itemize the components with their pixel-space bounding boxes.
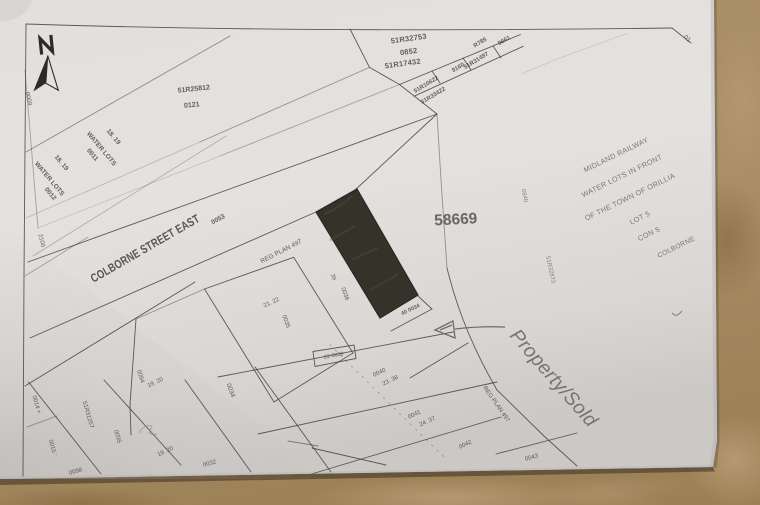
- svg-text:58669: 58669: [434, 210, 478, 229]
